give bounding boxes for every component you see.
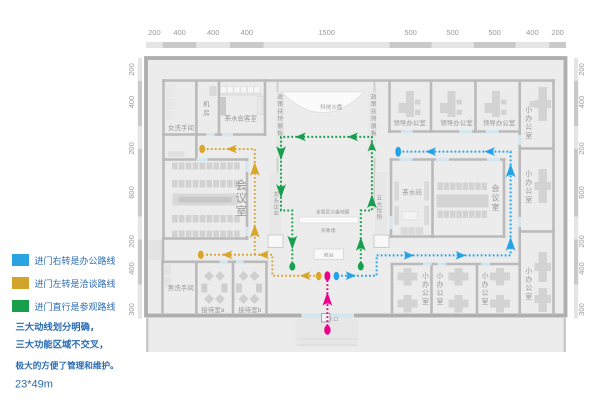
svg-text:接待室a: 接待室a (201, 305, 225, 314)
svg-text:政策扶持展板: 政策扶持展板 (277, 93, 283, 137)
svg-text:小办公室: 小办公室 (482, 271, 489, 306)
svg-text:龙头企业: 龙头企业 (273, 190, 279, 217)
svg-text:进门右转是办公路线: 进门右转是办公路线 (35, 255, 116, 266)
svg-text:300: 300 (127, 303, 136, 316)
svg-text:600: 600 (577, 186, 586, 199)
svg-text:400: 400 (241, 28, 254, 37)
svg-text:200: 200 (127, 142, 136, 155)
svg-text:男洗手间: 男洗手间 (168, 283, 194, 292)
svg-text:领导办公室: 领导办公室 (483, 118, 516, 127)
svg-text:形象墙: 形象墙 (321, 227, 336, 234)
svg-text:小办公室: 小办公室 (525, 105, 532, 140)
svg-text:200: 200 (577, 235, 586, 248)
svg-text:23*49m: 23*49m (15, 379, 53, 391)
svg-text:茶水会客室: 茶水会客室 (224, 114, 257, 123)
svg-text:500: 500 (404, 28, 417, 37)
svg-text:小办公室: 小办公室 (437, 271, 444, 306)
svg-text:400: 400 (577, 262, 586, 275)
svg-text:五大优势: 五大优势 (376, 195, 382, 221)
svg-text:小办公室: 小办公室 (525, 169, 532, 204)
svg-text:小办公室: 小办公室 (525, 266, 532, 301)
svg-text:进门左转是洽谈路线: 进门左转是洽谈路线 (35, 278, 116, 289)
svg-text:200: 200 (577, 63, 586, 76)
svg-text:200: 200 (148, 28, 161, 37)
svg-text:500: 500 (488, 28, 501, 37)
svg-text:400: 400 (127, 262, 136, 275)
svg-text:领导办公室: 领导办公室 (393, 118, 426, 127)
svg-text:全景区沙盘地图: 全景区沙盘地图 (316, 209, 350, 216)
svg-text:200: 200 (127, 63, 136, 76)
svg-text:入口: 入口 (329, 317, 339, 323)
svg-text:400: 400 (173, 28, 186, 37)
svg-text:三大动线划分明确，: 三大动线划分明确， (16, 321, 100, 332)
svg-text:300: 300 (577, 303, 586, 316)
svg-text:1500: 1500 (318, 28, 335, 37)
svg-text:小办公室: 小办公室 (422, 271, 429, 306)
svg-text:400: 400 (207, 28, 220, 37)
svg-text:进门直行是参观路线: 进门直行是参观路线 (35, 301, 116, 312)
svg-text:400: 400 (526, 28, 539, 37)
svg-text:女洗手间: 女洗手间 (168, 123, 194, 132)
svg-text:前台: 前台 (324, 251, 334, 258)
svg-text:600: 600 (127, 186, 136, 199)
svg-text:政策扶持展板: 政策扶持展板 (371, 93, 377, 137)
svg-text:500: 500 (446, 28, 459, 37)
svg-text:会议室: 会议室 (492, 183, 500, 212)
svg-text:200: 200 (551, 28, 564, 37)
svg-text:领导办公室: 领导办公室 (440, 118, 473, 127)
svg-text:会议室: 会议室 (236, 179, 248, 218)
svg-text:400: 400 (577, 96, 586, 109)
svg-text:极大的方便了管理和维护。: 极大的方便了管理和维护。 (16, 360, 119, 371)
svg-text:三大功能区域不交叉，: 三大功能区域不交叉， (16, 339, 109, 350)
svg-text:200: 200 (127, 235, 136, 248)
svg-text:科技沙盘: 科技沙盘 (320, 103, 343, 111)
svg-text:接待室b: 接待室b (238, 305, 262, 314)
svg-text:茶水间: 茶水间 (402, 188, 422, 197)
svg-text:200: 200 (577, 142, 586, 155)
svg-text:400: 400 (127, 96, 136, 109)
